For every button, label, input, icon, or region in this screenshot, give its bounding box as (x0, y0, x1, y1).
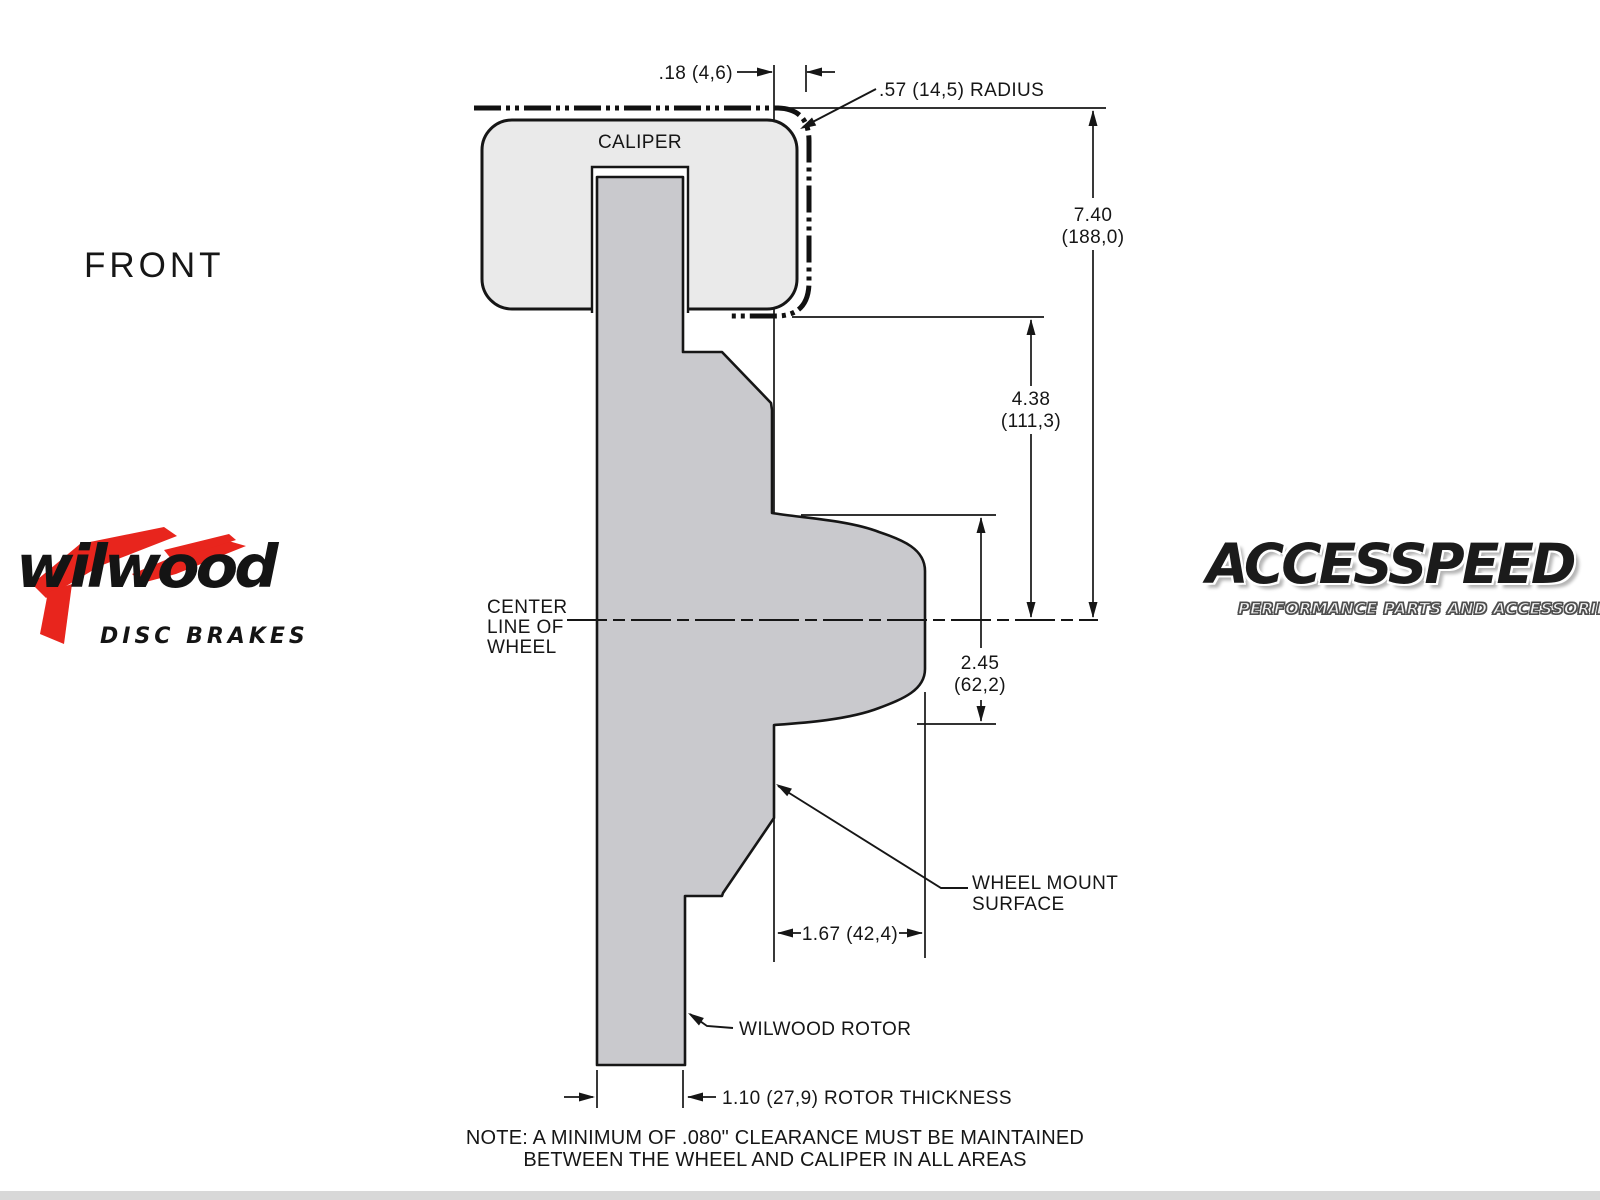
overall-height-dim-mm: (188,0) (1061, 227, 1124, 248)
clearance-note-line-1: NOTE: A MINIMUM OF .080" CLEARANCE MUST … (466, 1127, 1084, 1149)
clearance-note-line-2: BETWEEN THE WHEEL AND CALIPER IN ALL ARE… (523, 1149, 1026, 1171)
clearance-dim-label: .18 (4,6) (659, 63, 733, 84)
overall-height-dim-in: 7.40 (1074, 205, 1113, 226)
rotor-thickness-dim-label: 1.10 (27,9) ROTOR THICKNESS (722, 1088, 1012, 1109)
centerline-label-1: CENTER (487, 597, 568, 618)
accesspeed-logo: ACCESSPEED PERFORMANCE PARTS AND ACCESSO… (1206, 532, 1600, 652)
centerline-label-3: WHEEL (487, 637, 557, 658)
wheel-mount-label-1: WHEEL MOUNT (972, 873, 1118, 894)
image-bottom-border (0, 1191, 1600, 1200)
radius-dim-label: .57 (14,5) RADIUS (879, 80, 1044, 101)
wilwood-wordmark: wilwood (16, 532, 275, 601)
accesspeed-tagline: PERFORMANCE PARTS AND ACCESSORIES (1238, 599, 1600, 618)
hub-dim-mm: (62,2) (954, 675, 1006, 696)
upper-height-dim-in: 4.38 (1012, 389, 1051, 410)
wilwood-tagline: DISC BRAKES (100, 624, 309, 649)
mount-depth-dim-label: 1.67 (42,4) (802, 924, 898, 945)
wilwood-logo: wilwood DISC BRAKES (14, 522, 316, 658)
centerline-label-2: LINE OF (487, 617, 564, 638)
wheel-mount-label-2: SURFACE (972, 894, 1065, 915)
rotor-label: WILWOOD ROTOR (739, 1019, 911, 1040)
hub-dim-in: 2.45 (961, 653, 1000, 674)
upper-height-dim-mm: (111,3) (1001, 411, 1061, 432)
accesspeed-wordmark: ACCESSPEED (1206, 532, 1600, 596)
caliper-label: CALIPER (598, 132, 682, 153)
